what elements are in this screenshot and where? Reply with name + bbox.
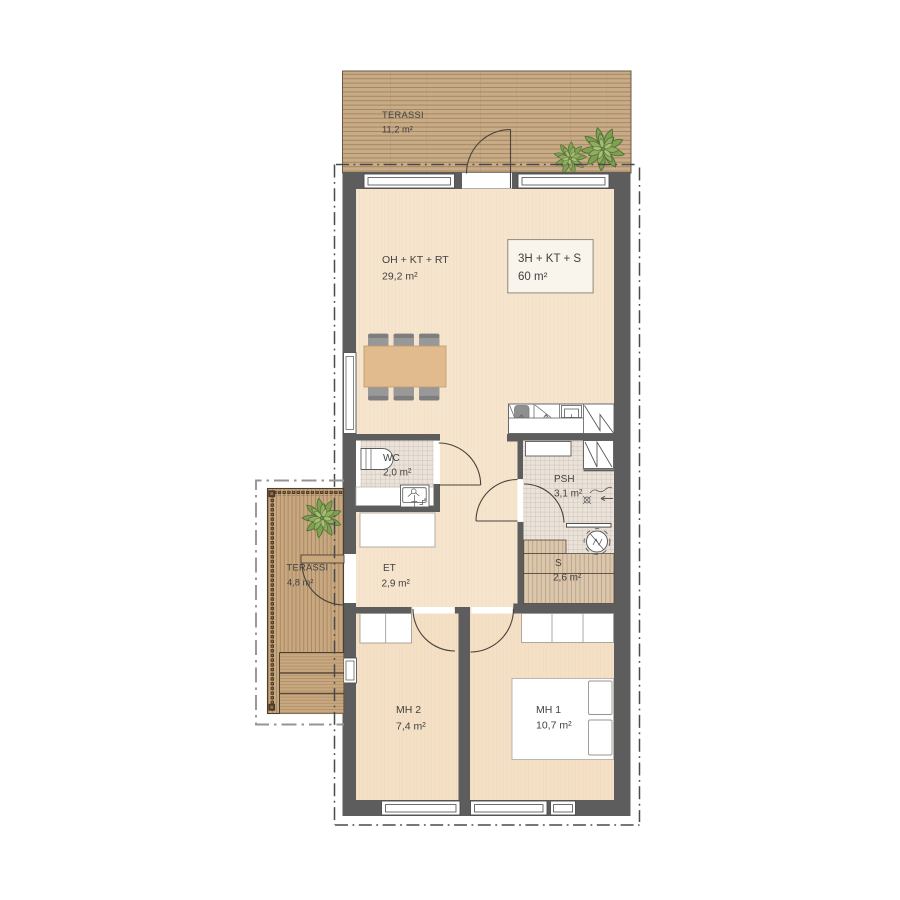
svg-text:PSH: PSH xyxy=(554,474,575,485)
svg-text:3,1 m²: 3,1 m² xyxy=(554,489,583,500)
svg-text:S: S xyxy=(555,558,562,569)
svg-text:2,6 m²: 2,6 m² xyxy=(553,573,582,584)
svg-text:60 m²: 60 m² xyxy=(518,271,548,283)
svg-text:MH 1: MH 1 xyxy=(536,704,561,716)
svg-text:4,8 m²: 4,8 m² xyxy=(287,578,313,588)
svg-text:7,4 m²: 7,4 m² xyxy=(396,721,426,733)
svg-text:2,9 m²: 2,9 m² xyxy=(382,579,411,590)
svg-text:10,7 m²: 10,7 m² xyxy=(536,720,572,732)
svg-text:2,0 m²: 2,0 m² xyxy=(383,468,412,479)
svg-text:TERASSI: TERASSI xyxy=(287,563,329,573)
svg-text:TERASSI: TERASSI xyxy=(382,110,424,120)
svg-text:3H + KT + S: 3H + KT + S xyxy=(518,253,581,265)
svg-text:11,2 m²: 11,2 m² xyxy=(382,125,413,135)
svg-text:MH 2: MH 2 xyxy=(396,704,421,716)
svg-text:ET: ET xyxy=(383,563,396,574)
svg-text:WC: WC xyxy=(383,453,400,464)
svg-text:OH + KT + RT: OH + KT + RT xyxy=(382,254,449,266)
svg-text:29,2 m²: 29,2 m² xyxy=(382,271,418,283)
